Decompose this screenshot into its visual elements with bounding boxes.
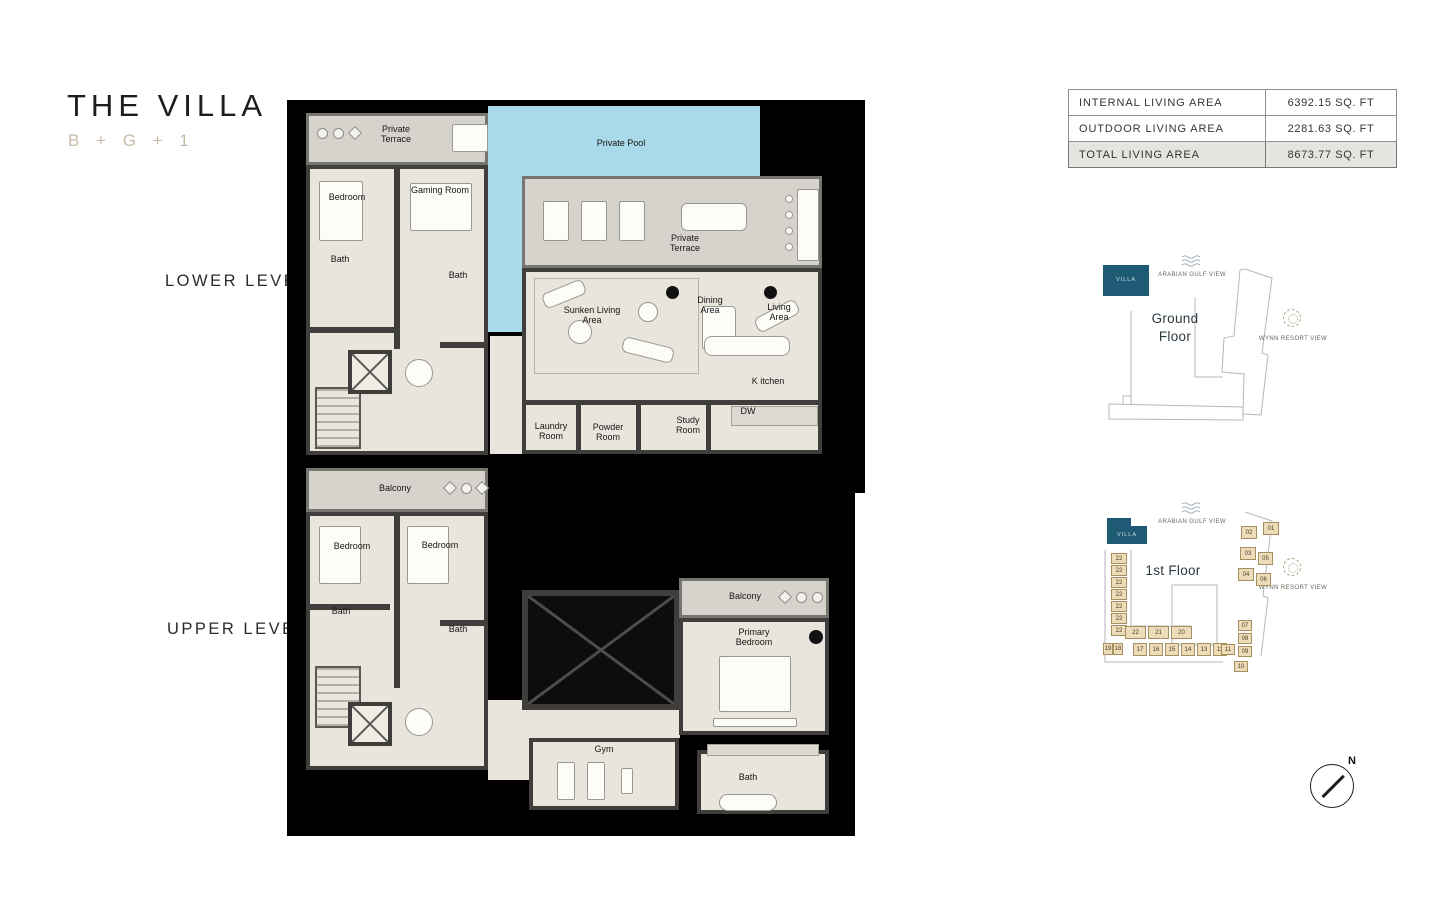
bar-counter-icon xyxy=(797,189,819,261)
compass-north-label: N xyxy=(1348,755,1356,767)
kitchen-island-icon xyxy=(704,336,790,356)
unit-block: 04 xyxy=(1238,568,1254,581)
wall xyxy=(526,400,818,405)
wynn-resort-icon xyxy=(1283,558,1301,576)
room-label: Gym xyxy=(584,744,624,754)
unit-block: 22 xyxy=(1111,565,1127,576)
site-map-first: VILLA ARABIAN GULF VIEW 1st Floor WYNN R… xyxy=(1095,498,1330,680)
villa-marker-label: VILLA xyxy=(1109,532,1145,538)
room-label: Living Area xyxy=(759,302,799,322)
room-label: Private Pool xyxy=(591,138,651,148)
stairs-icon xyxy=(315,387,361,449)
unit-block: 15 xyxy=(1165,643,1179,656)
unit-block: 13 xyxy=(1197,643,1211,656)
bench-icon xyxy=(713,718,797,727)
compass: N xyxy=(1306,753,1366,813)
compass-needle-icon xyxy=(1322,775,1345,798)
planter-icon xyxy=(443,481,457,495)
unit-block: 07 xyxy=(1238,620,1252,631)
lounger-icon xyxy=(619,201,645,241)
unit-block: 05 xyxy=(1258,552,1273,565)
page-subtitle: B + G + 1 xyxy=(68,131,195,151)
unit-block: 03 xyxy=(1240,547,1256,560)
room-label: Bath xyxy=(441,624,475,634)
unit-block: 14 xyxy=(1181,643,1195,656)
room-label: Dining Area xyxy=(690,295,730,315)
stool-icon xyxy=(785,211,793,219)
room-label: Private Terrace xyxy=(366,124,426,144)
dining-table-icon xyxy=(681,203,747,231)
planter-icon xyxy=(475,481,489,495)
room-label: Bedroom xyxy=(410,540,470,550)
room-label: Sunken Living Area xyxy=(557,305,627,325)
room-label: DW xyxy=(735,406,761,416)
bed-icon xyxy=(719,656,791,712)
room-label: Balcony xyxy=(365,483,425,493)
private-terrace-main xyxy=(522,176,822,268)
area-value: 2281.63 SQ. FT xyxy=(1266,116,1397,142)
room-label: Primary Bedroom xyxy=(724,627,784,647)
wall xyxy=(636,400,641,450)
wall xyxy=(576,400,581,450)
planter-icon xyxy=(778,590,792,604)
bed-icon xyxy=(319,181,363,241)
wall xyxy=(440,342,484,348)
bed-icon xyxy=(319,526,361,584)
page-title: THE VILLA xyxy=(67,88,267,124)
room-label: Bath xyxy=(728,772,768,782)
room-label: Powder Room xyxy=(584,422,632,442)
planter-icon xyxy=(317,128,328,139)
side-table-icon xyxy=(809,630,823,644)
room-label: Bath xyxy=(441,270,475,280)
bed-icon xyxy=(407,526,449,584)
villa-marker-label: VILLA xyxy=(1108,277,1144,283)
unit-block: 06 xyxy=(1256,573,1271,586)
unit-block: 22 xyxy=(1111,613,1127,624)
unit-block: 20 xyxy=(1171,626,1192,639)
floorplan-canvas: Private Terrace Private Pool Bedroom Gam… xyxy=(287,100,865,836)
wynn-resort-icon xyxy=(1283,309,1301,327)
unit-block: 17 xyxy=(1133,643,1147,656)
wall xyxy=(394,516,400,688)
compass-circle-icon xyxy=(1310,764,1354,808)
unit-block: 19 xyxy=(1103,643,1113,655)
unit-block: 11 xyxy=(1221,644,1235,655)
side-table-icon xyxy=(764,286,777,299)
unit-block: 10 xyxy=(1234,661,1248,672)
planter-icon xyxy=(461,483,472,494)
room-label: K itchen xyxy=(740,376,796,386)
planter-icon xyxy=(348,126,362,140)
bathtub-icon xyxy=(719,794,777,811)
room-label: Laundry Room xyxy=(527,421,575,441)
room-label: Private Terrace xyxy=(655,233,715,253)
site-map-ground: VILLA ARABIAN GULF VIEW Ground Floor WYN… xyxy=(1095,253,1330,431)
unit-block: 18 xyxy=(1113,643,1123,655)
view-label-gulf: ARABIAN GULF VIEW xyxy=(1152,518,1232,526)
area-label: TOTAL LIVING AREA xyxy=(1069,142,1266,168)
view-label-wynn: WYNN RESORT VIEW xyxy=(1255,335,1331,343)
area-label: OUTDOOR LIVING AREA xyxy=(1069,116,1266,142)
round-table-icon xyxy=(405,708,433,736)
brochure-page: { "title": { "main": "THE VILLA", "subti… xyxy=(0,0,1440,900)
planter-icon xyxy=(812,592,823,603)
room-label: Bath xyxy=(324,606,358,616)
planter-icon xyxy=(333,128,344,139)
lounger-icon xyxy=(543,201,569,241)
waves-icon xyxy=(1181,502,1203,515)
unit-block: 22 xyxy=(1111,553,1127,564)
lounger-icon xyxy=(581,201,607,241)
lower-left-wing xyxy=(306,165,488,455)
outdoor-table-icon xyxy=(452,124,488,152)
unit-block: 22 xyxy=(1111,589,1127,600)
treadmill-icon xyxy=(557,762,575,800)
corridor xyxy=(522,710,680,738)
area-value: 8673.77 SQ. FT xyxy=(1266,142,1397,168)
corridor xyxy=(490,336,522,454)
room-label: Gaming Room xyxy=(410,185,470,195)
waves-icon xyxy=(1181,255,1203,268)
stool-icon xyxy=(785,195,793,203)
view-label-gulf: ARABIAN GULF VIEW xyxy=(1152,271,1232,279)
floor-label: Ground Floor xyxy=(1135,310,1215,345)
wall xyxy=(394,169,400,349)
table-row-total: TOTAL LIVING AREA 8673.77 SQ. FT xyxy=(1069,142,1397,168)
stool-icon xyxy=(785,243,793,251)
area-table: INTERNAL LIVING AREA 6392.15 SQ. FT OUTD… xyxy=(1068,89,1397,168)
area-value: 6392.15 SQ. FT xyxy=(1266,90,1397,116)
unit-block: 02 xyxy=(1241,526,1257,539)
exercise-machine-icon xyxy=(621,768,633,794)
table-row: OUTDOOR LIVING AREA 2281.63 SQ. FT xyxy=(1069,116,1397,142)
canvas-step xyxy=(855,493,865,836)
room-label: Bedroom xyxy=(322,541,382,551)
area-label: INTERNAL LIVING AREA xyxy=(1069,90,1266,116)
round-table-icon xyxy=(638,302,658,322)
room-label: Balcony xyxy=(715,591,775,601)
unit-block: 16 xyxy=(1149,643,1163,656)
wall xyxy=(310,327,398,333)
side-table-icon xyxy=(666,286,679,299)
vanity-counter-icon xyxy=(707,744,819,756)
round-table-icon xyxy=(405,359,433,387)
unit-block: 22 xyxy=(1125,626,1146,639)
room-label: Bath xyxy=(323,254,357,264)
room-label: Bedroom xyxy=(317,192,377,202)
floor-label: 1st Floor xyxy=(1133,562,1213,580)
room-label: Study Room xyxy=(664,415,712,435)
stool-icon xyxy=(785,227,793,235)
void-shaft xyxy=(522,590,680,710)
treadmill-icon xyxy=(587,762,605,800)
elevator-icon xyxy=(348,702,392,746)
unit-block: 08 xyxy=(1238,633,1252,644)
unit-block: 22 xyxy=(1111,577,1127,588)
elevator-icon xyxy=(348,350,392,394)
private-pool-arm xyxy=(488,106,522,332)
unit-block: 09 xyxy=(1238,646,1252,657)
unit-block: 22 xyxy=(1111,601,1127,612)
unit-block: 21 xyxy=(1148,626,1169,639)
table-row: INTERNAL LIVING AREA 6392.15 SQ. FT xyxy=(1069,90,1397,116)
villa-marker: VILLA xyxy=(1103,265,1149,296)
unit-block: 01 xyxy=(1263,522,1279,535)
planter-icon xyxy=(796,592,807,603)
